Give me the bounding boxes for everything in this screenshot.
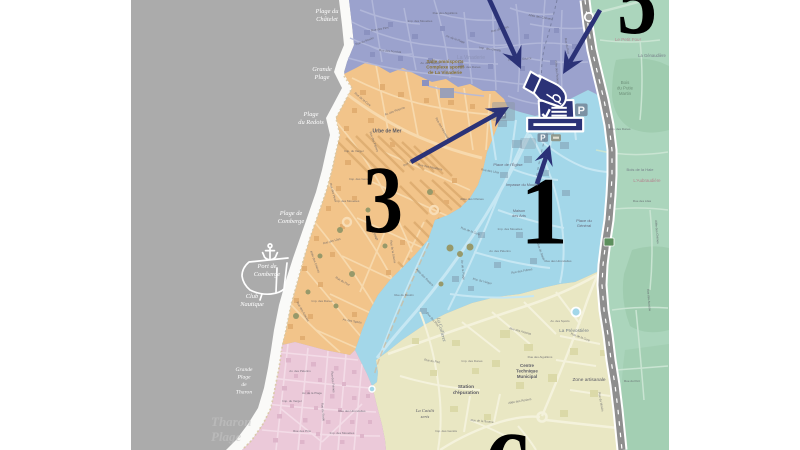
svg-text:seris: seris	[421, 414, 430, 419]
svg-text:de: de	[241, 382, 247, 388]
svg-text:Maison: Maison	[513, 209, 525, 213]
svg-text:Allée des Chênes: Allée des Chênes	[460, 197, 484, 201]
svg-text:Station: Station	[458, 384, 474, 390]
svg-text:Av. des Pèlerins: Av. des Pèlerins	[489, 249, 511, 253]
svg-text:5: 5	[617, 0, 657, 54]
svg-text:Général: Général	[577, 223, 591, 228]
svg-text:Plage du: Plage du	[315, 8, 339, 15]
svg-text:Imp. du Verger: Imp. du Verger	[344, 149, 364, 153]
svg-text:Imp. des Genêts: Imp. des Genêts	[435, 429, 458, 433]
svg-text:Rue des Lilas: Rue des Lilas	[633, 199, 652, 203]
svg-text:L'Aubraudière: L'Aubraudière	[633, 178, 661, 183]
svg-text:Rue des Aiguillons: Rue des Aiguillons	[433, 11, 458, 15]
svg-text:La Prévostière: La Prévostière	[559, 328, 589, 333]
svg-text:Tharon: Tharon	[236, 390, 252, 396]
svg-text:Plage de: Plage de	[279, 210, 303, 217]
svg-text:Complexe sportif: Complexe sportif	[426, 65, 464, 70]
svg-text:Rue des Aiguillons: Rue des Aiguillons	[528, 355, 553, 359]
svg-text:Rue du Port: Rue du Port	[624, 379, 640, 383]
svg-text:Plage: Plage	[314, 74, 330, 81]
svg-text:Grande: Grande	[312, 66, 332, 73]
svg-text:1: 1	[520, 158, 568, 265]
svg-text:Imp. des Mouettes: Imp. des Mouettes	[408, 19, 433, 23]
svg-text:Comberge: Comberge	[254, 271, 281, 278]
svg-text:Urbe de Mer: Urbe de Mer	[373, 129, 402, 135]
svg-text:Comberge: Comberge	[278, 218, 305, 225]
svg-text:Av. des Pèlerins: Av. des Pèlerins	[289, 369, 311, 373]
svg-text:des Arts: des Arts	[512, 214, 526, 218]
svg-text:Impasse du Moulin: Impasse du Moulin	[506, 183, 538, 187]
svg-text:Centre: Centre	[520, 363, 534, 368]
svg-text:3: 3	[363, 146, 403, 253]
svg-text:Imp. des Mouettes: Imp. des Mouettes	[330, 431, 355, 435]
svg-text:Plage: Plage	[303, 111, 319, 118]
svg-text:Martin: Martin	[619, 91, 632, 96]
svg-text:Châtelet: Châtelet	[316, 16, 338, 23]
svg-text:du Redois: du Redois	[298, 119, 324, 126]
svg-text:Tharon: Tharon	[211, 414, 251, 429]
svg-text:Av. de la Plage: Av. de la Plage	[302, 391, 322, 395]
svg-text:P: P	[540, 134, 546, 143]
svg-text:Nautique: Nautique	[239, 301, 264, 308]
svg-text:Le Petit Four: Le Petit Four	[615, 37, 642, 42]
svg-text:Zone artisanale: Zone artisanale	[572, 377, 605, 383]
svg-text:La Génaudière: La Génaudière	[638, 53, 666, 58]
svg-text:Municipal: Municipal	[517, 374, 537, 379]
svg-text:Grande: Grande	[235, 367, 253, 373]
svg-text:Place de l'Église: Place de l'Église	[493, 162, 523, 167]
svg-text:Club: Club	[246, 293, 258, 300]
svg-text:du Putie: du Putie	[617, 86, 634, 91]
svg-text:Imp. du Verger: Imp. du Verger	[282, 399, 302, 403]
svg-text:6: 6	[484, 412, 532, 450]
svg-text:Rue des Hirondelles: Rue des Hirondelles	[338, 409, 366, 413]
svg-text:Imp. des Mouettes: Imp. des Mouettes	[335, 199, 360, 203]
svg-text:Plage: Plage	[236, 375, 251, 381]
svg-text:Plage: Plage	[211, 429, 242, 444]
svg-text:Bois: Bois	[621, 80, 630, 85]
svg-text:La Caislit: La Caislit	[415, 408, 435, 413]
svg-text:Imp. des Dunes: Imp. des Dunes	[311, 299, 333, 303]
svg-text:Rue du Moulin: Rue du Moulin	[394, 293, 414, 297]
svg-text:Salle omnisports: Salle omnisports	[426, 59, 463, 64]
svg-text:P: P	[578, 105, 585, 117]
svg-text:Bois de la Haie: Bois de la Haie	[627, 167, 655, 172]
svg-text:Rue des Pins: Rue des Pins	[293, 429, 311, 433]
svg-text:d'épuration: d'épuration	[453, 390, 479, 396]
svg-text:Imp. des Dunes: Imp. des Dunes	[461, 359, 483, 363]
svg-text:Imp. des Dunes: Imp. des Dunes	[609, 127, 631, 131]
svg-text:Av. des Sports: Av. des Sports	[550, 319, 570, 323]
svg-text:Port de: Port de	[257, 263, 277, 270]
svg-text:Technique: Technique	[516, 369, 538, 374]
svg-text:de La Vinaderie: de La Vinaderie	[428, 70, 462, 75]
